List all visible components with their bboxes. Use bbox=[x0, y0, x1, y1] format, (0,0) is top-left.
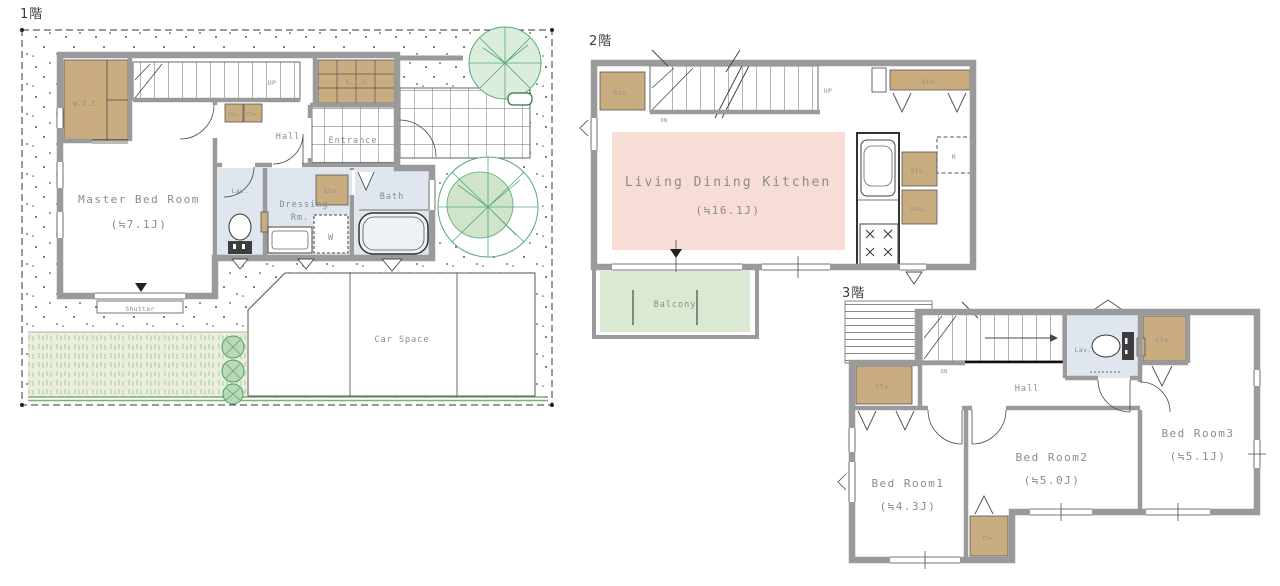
label-sto-dressing: Sto. bbox=[324, 187, 341, 195]
room-label-ldk: Living Dining Kitchen bbox=[625, 175, 831, 190]
room-label-bed1: Bed Room1 bbox=[871, 477, 944, 490]
bush-icons bbox=[222, 336, 244, 404]
stairs-2f bbox=[650, 60, 818, 118]
tree-icon bbox=[438, 157, 538, 257]
room-label-balcony: Balcony bbox=[654, 300, 697, 310]
grass-area bbox=[28, 332, 247, 398]
label-sto-small-1f: Sto. bbox=[228, 112, 241, 118]
floor1-plan: 1階 bbox=[20, 7, 554, 407]
floor3-label: 3階 bbox=[842, 286, 865, 301]
room-label-bath: Bath bbox=[380, 192, 404, 202]
label-up-1f: UP bbox=[268, 79, 276, 87]
label-washer: W bbox=[328, 233, 334, 243]
room-label-hall-3f: Hall bbox=[1015, 384, 1039, 394]
label-clo-3f-bottom: Clo. bbox=[983, 536, 996, 542]
room-label-lav-3f: Lav. bbox=[1075, 346, 1092, 354]
room-label-master: Master Bed Room bbox=[78, 193, 200, 206]
floorplan-svg: 1階 bbox=[0, 0, 1280, 586]
label-clo-3f-right: Clo. bbox=[1156, 336, 1173, 344]
label-sto-2f-right: Sto. bbox=[922, 78, 939, 86]
room-label-dressing-2: Rm. bbox=[291, 213, 309, 223]
kitchen-counter bbox=[857, 133, 899, 266]
label-bed3-size: (≒5.1J) bbox=[1170, 450, 1227, 463]
label-shutter: Shutter bbox=[125, 305, 155, 313]
room-label-entrance: Entrance bbox=[329, 136, 378, 146]
label-up-2f: UP bbox=[824, 87, 832, 95]
towel-cabinet bbox=[261, 212, 268, 232]
room-label-bed3: Bed Room3 bbox=[1161, 427, 1234, 440]
label-clo-small-1f: Clo. bbox=[247, 112, 260, 118]
label-fridge: R bbox=[952, 153, 956, 161]
tree-icon bbox=[469, 27, 541, 99]
floorplan-canvas: 1階 bbox=[0, 0, 1280, 586]
label-master-size: (≒7.1J) bbox=[111, 218, 168, 231]
label-sto-2f-left: Sto. bbox=[614, 89, 631, 97]
label-bed2-size: (≒5.0J) bbox=[1024, 474, 1081, 487]
floor2-label: 2階 bbox=[589, 34, 612, 49]
label-bed1-size: (≒4.3J) bbox=[880, 500, 937, 513]
room-label-dressing-1: Dressing bbox=[280, 200, 329, 210]
toilet-icon-1f bbox=[228, 214, 252, 254]
stove-icon bbox=[860, 224, 898, 264]
label-clo-3f-left: Clo. bbox=[876, 383, 893, 391]
gate-post-icon bbox=[508, 93, 532, 105]
vanity-icon bbox=[268, 227, 312, 253]
room-label-hall-1f: Hall bbox=[276, 132, 300, 142]
floor3-plan: 3階 bbox=[838, 286, 1266, 569]
label-dn-2f: DN bbox=[661, 118, 667, 124]
room-label-wic: W.I.C. bbox=[73, 100, 101, 108]
label-sto-2f-mid1: Sto. bbox=[911, 167, 928, 175]
room-label-car-space: Car Space bbox=[374, 335, 429, 345]
floor1-label: 1階 bbox=[20, 7, 43, 22]
pipe-space bbox=[872, 68, 886, 92]
label-ldk-size: (≒16.1J) bbox=[696, 204, 761, 217]
room-label-bed2: Bed Room2 bbox=[1015, 451, 1088, 464]
room-label-lav-1f: Lav. bbox=[232, 187, 249, 195]
floor2-plan: 2階 bbox=[580, 34, 973, 337]
ldk-area bbox=[612, 132, 845, 250]
bathtub-icon bbox=[359, 210, 428, 254]
entrance-floor bbox=[312, 107, 395, 163]
label-dn-3f: DN bbox=[941, 369, 947, 375]
label-sto-2f-mid2: Sto. bbox=[911, 205, 928, 213]
room-label-sic: S.I.C bbox=[345, 78, 366, 86]
